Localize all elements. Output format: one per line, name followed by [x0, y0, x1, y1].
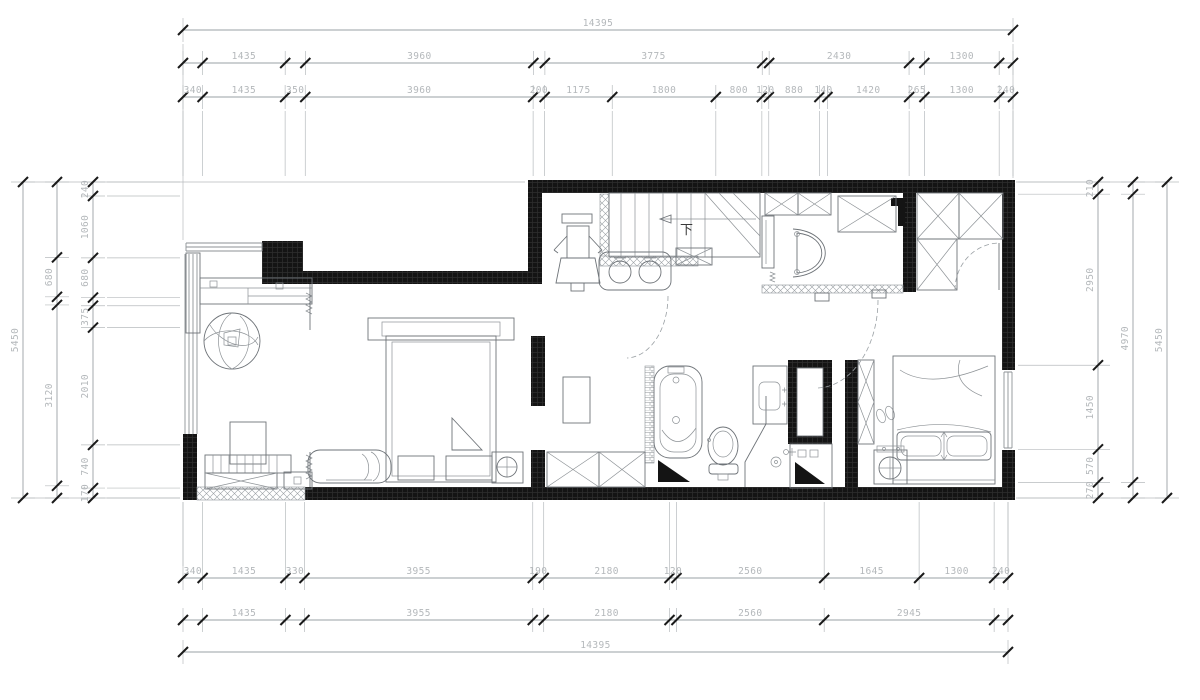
foot-cushion-2	[446, 456, 492, 480]
door-arc-hall	[627, 296, 668, 358]
dim-row-bottom-overall: 14395	[178, 640, 1013, 664]
dim-label: 2560	[738, 566, 762, 577]
hall-table	[563, 377, 590, 423]
brick-wall-tub	[645, 366, 654, 463]
washer-cabinet	[790, 444, 832, 488]
window-left-wall	[185, 254, 197, 434]
dim-label: 240	[992, 566, 1010, 577]
equip-foot	[571, 283, 584, 291]
master-bedroom	[308, 318, 590, 483]
dim-label: 5450	[1154, 328, 1165, 352]
bed-right	[893, 356, 995, 484]
dim-label: 1435	[232, 608, 256, 619]
floor-plan-drawing: 下	[0, 0, 1200, 700]
dim-label: 190	[529, 566, 547, 577]
dim-label: 240	[80, 180, 91, 198]
dim-label: 3955	[406, 566, 430, 577]
dim-row-right-col-inner: 21029501450570270	[1018, 177, 1110, 503]
equip-body	[567, 226, 589, 258]
nightstand-lamp	[492, 452, 523, 483]
bathtub	[654, 366, 702, 458]
dim-label: 3775	[641, 51, 665, 62]
equip-arms	[554, 236, 602, 253]
wall-bath-closet-divider	[903, 180, 916, 292]
dim-label: 2180	[594, 566, 618, 577]
wall-bottomleft-block	[183, 434, 197, 494]
wall-right-lower	[1002, 450, 1015, 500]
dim-label: 14395	[583, 18, 614, 29]
dim-label: 570	[1085, 457, 1096, 475]
foot-cushion-1	[398, 456, 434, 480]
dim-label: 170	[80, 484, 91, 502]
dim-row-left-overall: 5450	[10, 177, 35, 503]
wall-right-upper	[1002, 180, 1015, 370]
dim-label: 3960	[407, 85, 431, 96]
desk-monitor-1	[210, 281, 217, 287]
dim-row-top-row-2: 14353960377524301300	[178, 51, 1018, 75]
wardrobe-tall	[858, 360, 874, 444]
dim-label: 270	[1085, 481, 1096, 499]
wall-step	[528, 180, 542, 284]
dim-row-left-col-inner: 24010606803752010740170	[80, 177, 180, 503]
fitness-equipment	[554, 214, 602, 291]
dim-label: 1420	[856, 85, 880, 96]
cabinet-knob	[294, 477, 301, 484]
bath-wall-bottom	[762, 285, 903, 293]
dim-label: 4970	[1120, 326, 1131, 350]
dim-row-bottom-row-1: 340143533039551902180120256016451300240	[178, 502, 1013, 590]
dim-label: 3120	[44, 383, 55, 407]
bath-radiator	[770, 272, 775, 282]
dim-label: 1435	[232, 51, 256, 62]
decor-fan-plant	[204, 313, 260, 369]
low-cabinet-2	[284, 472, 312, 489]
stair-winders	[705, 193, 760, 255]
chaise-lounge	[308, 450, 391, 483]
wall-stub-upper	[531, 336, 545, 406]
door-wedge-bath	[658, 460, 690, 482]
headboard	[368, 318, 514, 340]
floor-plan-canvas: 下	[0, 0, 1200, 700]
dim-label: 375	[80, 307, 91, 325]
wall-block-topleft	[262, 241, 303, 284]
bed-double	[386, 336, 496, 482]
dim-label: 1450	[1085, 395, 1096, 419]
closets-bottom	[547, 452, 645, 487]
dim-label: 3955	[406, 608, 430, 619]
dim-label: 740	[80, 457, 91, 475]
dim-label: 200	[530, 85, 548, 96]
dim-label: 120	[756, 85, 774, 96]
dim-row-left-col-mid: 6803120	[44, 177, 69, 503]
staircase: 下	[609, 193, 760, 265]
dim-label: 14395	[580, 640, 611, 651]
dim-label: 240	[997, 85, 1015, 96]
dim-label: 340	[184, 85, 202, 96]
equip-top	[562, 214, 592, 223]
dim-label: 1435	[232, 85, 256, 96]
right-bedroom	[858, 356, 995, 484]
dim-label: 1300	[950, 85, 974, 96]
dim-label: 1435	[232, 566, 256, 577]
stair-direction-label: 下	[680, 223, 693, 238]
dim-label: 330	[286, 566, 304, 577]
dim-label: 1060	[80, 215, 91, 239]
dim-label: 2950	[1085, 267, 1096, 291]
dim-label: 680	[44, 268, 55, 286]
left-room	[186, 253, 312, 489]
window-left-room-top	[186, 243, 262, 251]
bathroom-top	[762, 193, 896, 282]
dim-label: 1300	[950, 51, 974, 62]
dim-label: 210	[1085, 179, 1096, 197]
door-arc-closet	[955, 243, 999, 290]
wall-top-mid	[295, 271, 542, 284]
dim-row-bottom-row-2: 14353955218025602945	[178, 608, 1013, 632]
closet-room	[917, 193, 1003, 290]
dim-row-top-overall: 14395	[178, 18, 1018, 42]
window-right-wall	[1004, 372, 1012, 448]
dim-label: 800	[730, 85, 748, 96]
wall-top-right	[528, 180, 1015, 193]
door-frame-1	[815, 293, 829, 301]
dim-label: 5450	[10, 328, 21, 352]
dim-row-right-col-mid: 4970	[1120, 177, 1145, 503]
small-table	[230, 422, 266, 464]
dim-label: 2010	[80, 374, 91, 398]
dim-label: 3960	[407, 51, 431, 62]
dim-label: 2180	[594, 608, 618, 619]
corner-tub	[797, 233, 822, 273]
dim-label: 350	[286, 85, 304, 96]
dim-label: 1645	[859, 566, 883, 577]
dim-label: 340	[184, 566, 202, 577]
pillow-divider-arrow	[941, 432, 947, 460]
wash-basin	[753, 366, 787, 424]
duct-inner	[797, 368, 823, 436]
wall-stub-lower	[531, 450, 545, 490]
nightstand-right	[874, 446, 907, 484]
dim-label: 1800	[652, 85, 676, 96]
dim-row-right-overall: 5450	[1154, 177, 1179, 503]
dim-label: 680	[80, 269, 91, 287]
dim-label: 880	[785, 85, 803, 96]
blanket-fold	[452, 418, 482, 450]
equip-base	[556, 258, 600, 283]
pillow-2	[947, 436, 987, 456]
dim-row-top-row-3: 3401435350396020011751800800120880140142…	[178, 85, 1018, 176]
dim-label: 2560	[738, 608, 762, 619]
dim-label: 265	[908, 85, 926, 96]
dim-label: 1175	[566, 85, 590, 96]
dim-label: 140	[814, 85, 832, 96]
dim-label: 120	[664, 566, 682, 577]
toilet	[708, 427, 739, 480]
dim-label: 1300	[944, 566, 968, 577]
corner-bracket	[891, 198, 905, 226]
dim-label: 2945	[897, 608, 921, 619]
stair-wall-left	[600, 194, 609, 264]
wall-shower-bedroom	[845, 360, 858, 490]
door-wedge-shower	[795, 462, 825, 484]
bath-shelf	[762, 216, 774, 268]
dim-label: 2430	[827, 51, 851, 62]
